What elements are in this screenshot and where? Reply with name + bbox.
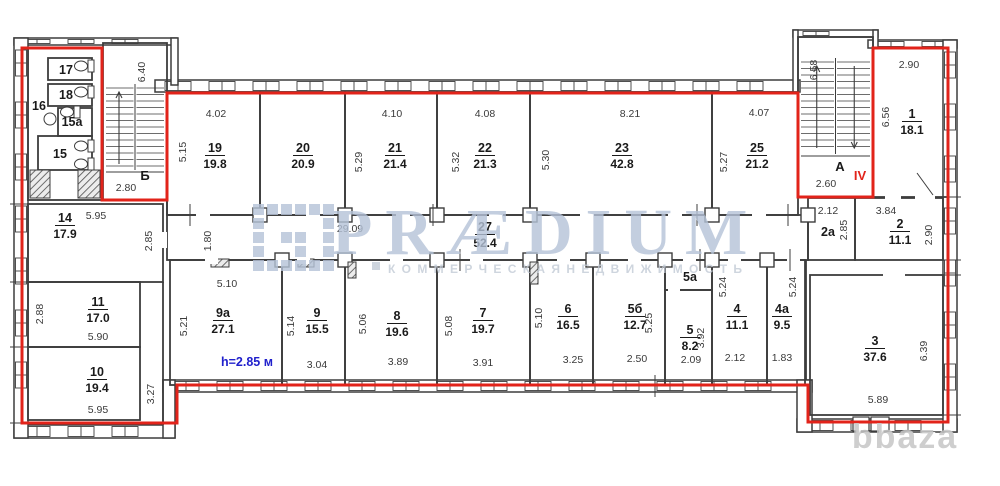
floor-plan-page: 1919.82020.92121.42221.32342.82521.2118.…: [0, 0, 1000, 486]
room-15a-label: 15a: [62, 115, 84, 129]
room-number: 16: [32, 99, 46, 113]
room-19-label: 1919.8: [203, 141, 227, 171]
room-21-label: 2121.4: [383, 141, 407, 171]
room-number: 25: [750, 141, 764, 155]
room-2-label: 211.1: [889, 217, 912, 247]
dimension-label: 2.12: [725, 352, 746, 364]
room-8-label: 819.6: [385, 309, 409, 339]
logo-cell: [309, 204, 320, 215]
toilet-icon: [75, 61, 88, 71]
dimension-label: 5.06: [357, 314, 369, 335]
dimension-label: 3.91: [473, 357, 494, 369]
dimension-label: 3.92: [695, 328, 707, 349]
room-number: 10: [90, 365, 104, 379]
logo-cell: [253, 246, 264, 257]
room-10-label: 1019.4: [85, 365, 109, 395]
room-22-label: 2221.3: [473, 141, 497, 171]
room-1-label: 118.1: [900, 107, 924, 137]
room-number: 4a: [775, 302, 790, 316]
room-area: 11.1: [889, 233, 912, 247]
door-opening: [159, 232, 167, 248]
room-area: 9.5: [774, 318, 791, 332]
room-area: 19.7: [471, 322, 495, 336]
dimension-label: 2.50: [627, 353, 648, 365]
room-area: 42.8: [610, 157, 634, 171]
door-leaf: [917, 173, 933, 195]
dimension-label: 3.27: [145, 384, 157, 405]
room-area: 19.6: [385, 325, 409, 339]
room-number: 15a: [62, 115, 84, 129]
room-number: 3: [872, 334, 879, 348]
logo-cell: [267, 260, 278, 271]
dimension-label: 5.95: [86, 210, 107, 222]
room-2a-label: 2a: [821, 225, 836, 239]
room-number: 21: [388, 141, 402, 155]
room-number: 19: [208, 141, 222, 155]
room-number: 5: [687, 323, 694, 337]
room-area: 37.6: [863, 350, 887, 364]
room-15-label: 15: [53, 147, 67, 161]
room-area: 15.5: [305, 322, 329, 336]
room-number: 9: [314, 306, 321, 320]
bbaza-watermark: bbaza bbaza: [852, 418, 960, 458]
watermark-brand-text: PRÆDIUM: [332, 196, 760, 269]
toilet-icon: [88, 158, 94, 170]
door-opening: [205, 256, 218, 264]
toilet-icon: [75, 159, 88, 169]
bbaza-text: bbaza: [852, 418, 958, 456]
room-number: 14: [58, 211, 72, 225]
logo-cell: [253, 204, 264, 215]
room-6-label: 616.5: [556, 302, 580, 332]
room-number: 4: [734, 302, 741, 316]
room-14-label: 1417.9: [53, 211, 77, 241]
dimension-label: 5.25: [643, 313, 655, 334]
room-area: 19.8: [203, 157, 227, 171]
room-9a-label: 9a27.1: [211, 306, 235, 336]
dimension-label: 5.08: [443, 316, 455, 337]
dimension-label: 2.90: [899, 59, 920, 71]
logo-cell: [253, 260, 264, 271]
logo-cell: [295, 232, 306, 243]
logo-cell: [295, 204, 306, 215]
shaft-hatch: [78, 170, 100, 198]
toilet-icon: [88, 140, 94, 152]
dimension-label: 1.83: [772, 352, 793, 364]
dimension-label: 2.85: [143, 231, 155, 252]
dimension-label: 6.58: [808, 60, 820, 81]
dimension-label: 5.89: [868, 394, 889, 406]
room-3-label: 337.6: [863, 334, 887, 364]
dimension-label: 5.32: [450, 152, 462, 173]
dimension-label: 5.30: [540, 150, 552, 171]
dimension-label: 5.90: [88, 331, 109, 343]
room-number: 20: [296, 141, 310, 155]
room-number: 11: [91, 295, 104, 309]
dimension-label: 2.85: [838, 220, 850, 241]
room-25-label: 2521.2: [745, 141, 769, 171]
dimension-label: 4.02: [206, 108, 227, 120]
dimension-label: 5.10: [533, 308, 545, 329]
shaft-hatch: [30, 170, 50, 198]
door-opening: [196, 211, 210, 219]
room-area: 16.5: [556, 318, 580, 332]
door-opening: [883, 271, 905, 279]
dimension-label: 8.21: [620, 108, 641, 120]
room-4-label: 411.1: [726, 302, 749, 332]
room-9-label: 915.5: [305, 306, 329, 336]
door-opening: [668, 286, 680, 294]
room-number: 6: [565, 302, 572, 316]
room-area: 17.0: [86, 311, 110, 325]
door-opening: [787, 256, 800, 264]
room-11-label: 1117.0: [86, 295, 110, 325]
ceiling-height-note: h=2.85 м: [221, 355, 273, 369]
room-number: 8: [394, 309, 401, 323]
room-number: 7: [480, 306, 487, 320]
logo-cell: [309, 260, 320, 271]
logo-cell: [281, 232, 292, 243]
room-18-label: 18: [59, 88, 73, 102]
floor-mark: IV: [854, 168, 867, 183]
room-number: 23: [615, 141, 629, 155]
room-number: 5б: [628, 302, 643, 316]
room-area: 19.4: [85, 381, 109, 395]
dimension-label: 2.09: [681, 354, 702, 366]
toilet-icon: [88, 86, 94, 98]
room-4a-label: 4a9.5: [772, 302, 792, 332]
dimension-label: 6.40: [136, 62, 148, 83]
dimension-label: 4.08: [475, 108, 496, 120]
logo-cell: [253, 218, 264, 229]
room-7-label: 719.7: [471, 306, 495, 336]
room-20-label: 2020.9: [291, 141, 315, 171]
dimension-label: 5.27: [718, 152, 730, 173]
logo-cell: [295, 246, 306, 257]
dimension-label: 5.14: [285, 316, 297, 337]
watermark-subtitle-text: К О М М Е Р Ч Е С К А Я Н Е Д В И Ж И М …: [388, 262, 744, 276]
dimension-label: 4.10: [382, 108, 403, 120]
logo-cell: [295, 260, 306, 271]
dimension-label: 4.07: [749, 107, 770, 119]
room-area: 20.9: [291, 157, 315, 171]
dimension-label: 1.80: [202, 231, 214, 252]
room-number: 2: [897, 217, 904, 231]
dimension-label: 2.90: [923, 225, 935, 246]
room-number: 18: [59, 88, 73, 102]
dimension-label: 2.60: [816, 178, 837, 190]
staircase-label: Б: [140, 168, 149, 183]
outer-wall: [163, 380, 175, 438]
door-opening: [885, 194, 901, 202]
room-area: 21.3: [473, 157, 497, 171]
logo-cell: [281, 204, 292, 215]
room-16-label: 16: [32, 99, 46, 113]
room-17-label: 17: [59, 63, 73, 77]
column: [760, 253, 774, 267]
toilet-icon: [75, 141, 88, 151]
dimension-label: 5.95: [88, 404, 109, 416]
dimension-label: 5.24: [717, 277, 729, 298]
room-area: 21.4: [383, 157, 407, 171]
dimension-label: 2.88: [34, 304, 46, 325]
toilet-icon: [75, 87, 88, 97]
toilet-icon: [88, 60, 94, 72]
floor-plan-drawing: 1919.82020.92121.42221.32342.82521.2118.…: [0, 0, 1000, 486]
room-area: 11.1: [726, 318, 749, 332]
dimension-label: 2.12: [818, 205, 839, 217]
dimension-label: 5.10: [217, 278, 238, 290]
praedium-watermark: PRÆDIUM К О М М Е Р Ч Е С К А Я Н Е Д В …: [253, 196, 760, 276]
column: [801, 208, 815, 222]
dimension-label: 5.21: [178, 316, 190, 337]
room-23-label: 2342.8: [610, 141, 634, 171]
room-number: 9a: [216, 306, 231, 320]
logo-cell: [267, 204, 278, 215]
room-number: 1: [909, 107, 916, 121]
room-area: 27.1: [211, 322, 235, 336]
room-area: 21.2: [745, 157, 769, 171]
dimension-label: 3.04: [307, 359, 328, 371]
room-10: [28, 347, 140, 420]
staircase-label: А: [835, 159, 845, 174]
dimension-label: 2.80: [116, 182, 137, 194]
room-number: 22: [478, 141, 492, 155]
sink-icon: [44, 113, 56, 125]
logo-cell: [281, 260, 292, 271]
dimension-label: 3.84: [876, 205, 897, 217]
logo-cell: [253, 232, 264, 243]
room-number: 2a: [821, 225, 836, 239]
dimension-label: 6.39: [918, 341, 930, 362]
dimension-label: 5.24: [787, 277, 799, 298]
outer-wall: [171, 38, 178, 85]
room-area: 17.9: [53, 227, 77, 241]
dimension-label: 3.89: [388, 356, 409, 368]
room-area: 18.1: [900, 123, 924, 137]
room-number: 17: [59, 63, 73, 77]
room-number: 15: [53, 147, 67, 161]
dimension-label: 6.56: [880, 107, 892, 128]
dimension-label: 5.29: [353, 152, 365, 173]
dimension-label: 5.15: [177, 142, 189, 163]
dimension-label: 3.25: [563, 354, 584, 366]
